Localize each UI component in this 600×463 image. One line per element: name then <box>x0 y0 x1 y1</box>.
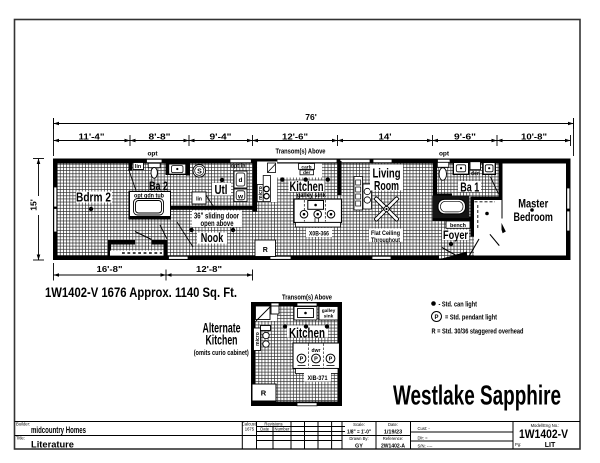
svg-text:opt gdn tub: opt gdn tub <box>134 194 164 200</box>
svg-text:- Std. can light: - Std. can light <box>439 302 478 309</box>
svg-text:16'-8": 16'-8" <box>97 264 123 274</box>
svg-text:Number: Number <box>275 427 290 432</box>
svg-text:R: R <box>261 389 267 398</box>
svg-text:P: P <box>314 357 318 363</box>
svg-text:micro: micro <box>255 332 261 346</box>
svg-text:midcountry Homes: midcountry Homes <box>31 425 86 436</box>
svg-text:12'-6": 12'-6" <box>282 131 308 141</box>
svg-text:S: S <box>197 169 202 176</box>
svg-text:lin: lin <box>196 197 202 203</box>
svg-text:Ba 2: Ba 2 <box>149 179 168 193</box>
svg-text:lin: lin <box>135 164 142 170</box>
svg-text:1W1402-V 1676 Approx. 1140 Sq.: 1W1402-V 1676 Approx. 1140 Sq. Ft. <box>45 284 237 300</box>
svg-text:der: der <box>303 170 311 176</box>
svg-text:Utl: Utl <box>215 183 228 197</box>
svg-text:8'-8": 8'-8" <box>149 131 171 141</box>
svg-text:Pg:: Pg: <box>515 442 521 447</box>
svg-text:Literature: Literature <box>31 440 74 451</box>
svg-text:d: d <box>239 177 243 184</box>
svg-text:galley sink: galley sink <box>297 192 326 199</box>
svg-text:sink: sink <box>324 314 334 320</box>
svg-text:Foyer: Foyer <box>443 230 468 242</box>
svg-text:Dlr: =: Dlr: = <box>418 435 429 440</box>
svg-text:bench: bench <box>450 223 467 229</box>
svg-text:Builder:: Builder: <box>16 422 30 427</box>
svg-text:12'-8": 12'-8" <box>196 264 222 274</box>
svg-text:LIT: LIT <box>545 442 556 449</box>
svg-text:1W1402-V: 1W1402-V <box>519 429 568 441</box>
svg-text:Reference:: Reference: <box>383 436 403 441</box>
svg-text:open above: open above <box>201 218 234 228</box>
svg-text:1/8" = 1'-0": 1/8" = 1'-0" <box>347 430 371 436</box>
svg-text:11'-4": 11'-4" <box>79 131 105 141</box>
svg-text:Transom(s) Above: Transom(s) Above <box>276 149 326 156</box>
svg-text:Bedroom: Bedroom <box>513 212 553 224</box>
svg-text:Throughout: Throughout <box>371 237 401 244</box>
svg-text:den: den <box>471 171 480 177</box>
svg-text:Title:: Title: <box>16 436 25 441</box>
svg-text:P: P <box>329 357 333 363</box>
svg-text:1675: 1675 <box>245 427 255 432</box>
svg-text:carb: carb <box>301 164 311 170</box>
svg-text:opt in: opt in <box>231 164 247 170</box>
svg-text:micro: micro <box>258 186 264 200</box>
svg-text:R: R <box>263 247 268 254</box>
svg-text:w: w <box>237 194 244 201</box>
svg-text:dwr: dwr <box>312 348 321 354</box>
svg-text:2W1402-A: 2W1402-A <box>381 444 405 450</box>
svg-text:10'-8": 10'-8" <box>521 131 547 141</box>
svg-text:76': 76' <box>305 112 316 122</box>
svg-text:X0B-366: X0B-366 <box>309 230 329 237</box>
svg-text:opt: opt <box>147 151 158 158</box>
svg-text:Model/Eng No.:: Model/Eng No.: <box>531 423 560 428</box>
svg-text:Kitchen: Kitchen <box>206 332 238 348</box>
svg-text:GY: GY <box>355 444 363 450</box>
svg-text:R = Std. 30/36 staggered overh: R = Std. 30/36 staggered overhead <box>432 329 524 336</box>
svg-text:Bdrm 2: Bdrm 2 <box>76 190 111 205</box>
svg-text:1/19/23: 1/19/23 <box>384 430 402 436</box>
svg-text:9'-6": 9'-6" <box>454 131 476 141</box>
svg-text:= Std. pendant light: = Std. pendant light <box>445 315 498 322</box>
svg-text:S/N: ----: S/N: ---- <box>418 443 433 448</box>
svg-text:XIB-371: XIB-371 <box>308 375 328 382</box>
svg-text:Ba 1: Ba 1 <box>460 181 479 195</box>
svg-text:Room: Room <box>374 178 399 193</box>
svg-text:Date:: Date: <box>388 422 398 427</box>
svg-text:(omits curio cabinet): (omits curio cabinet) <box>194 348 249 357</box>
svg-text:15': 15' <box>29 199 39 210</box>
svg-text:P: P <box>434 315 438 321</box>
svg-text:Scale:: Scale: <box>353 422 365 427</box>
svg-text:Westlake Sapphire: Westlake Sapphire <box>393 380 561 411</box>
svg-text:Master: Master <box>518 198 548 210</box>
svg-text:Date: Date <box>260 427 270 432</box>
svg-text:Drawn By:: Drawn By: <box>349 436 368 441</box>
svg-text:Transom(s) Above: Transom(s) Above <box>282 295 332 302</box>
svg-text:opt: opt <box>439 151 450 158</box>
svg-text:14': 14' <box>379 131 392 141</box>
svg-text:Cust: -: Cust: - <box>418 426 431 431</box>
svg-text:Nook: Nook <box>201 230 224 245</box>
svg-text:9'-4": 9'-4" <box>210 131 232 141</box>
svg-text:galley: galley <box>322 308 336 314</box>
svg-text:P: P <box>300 357 304 363</box>
